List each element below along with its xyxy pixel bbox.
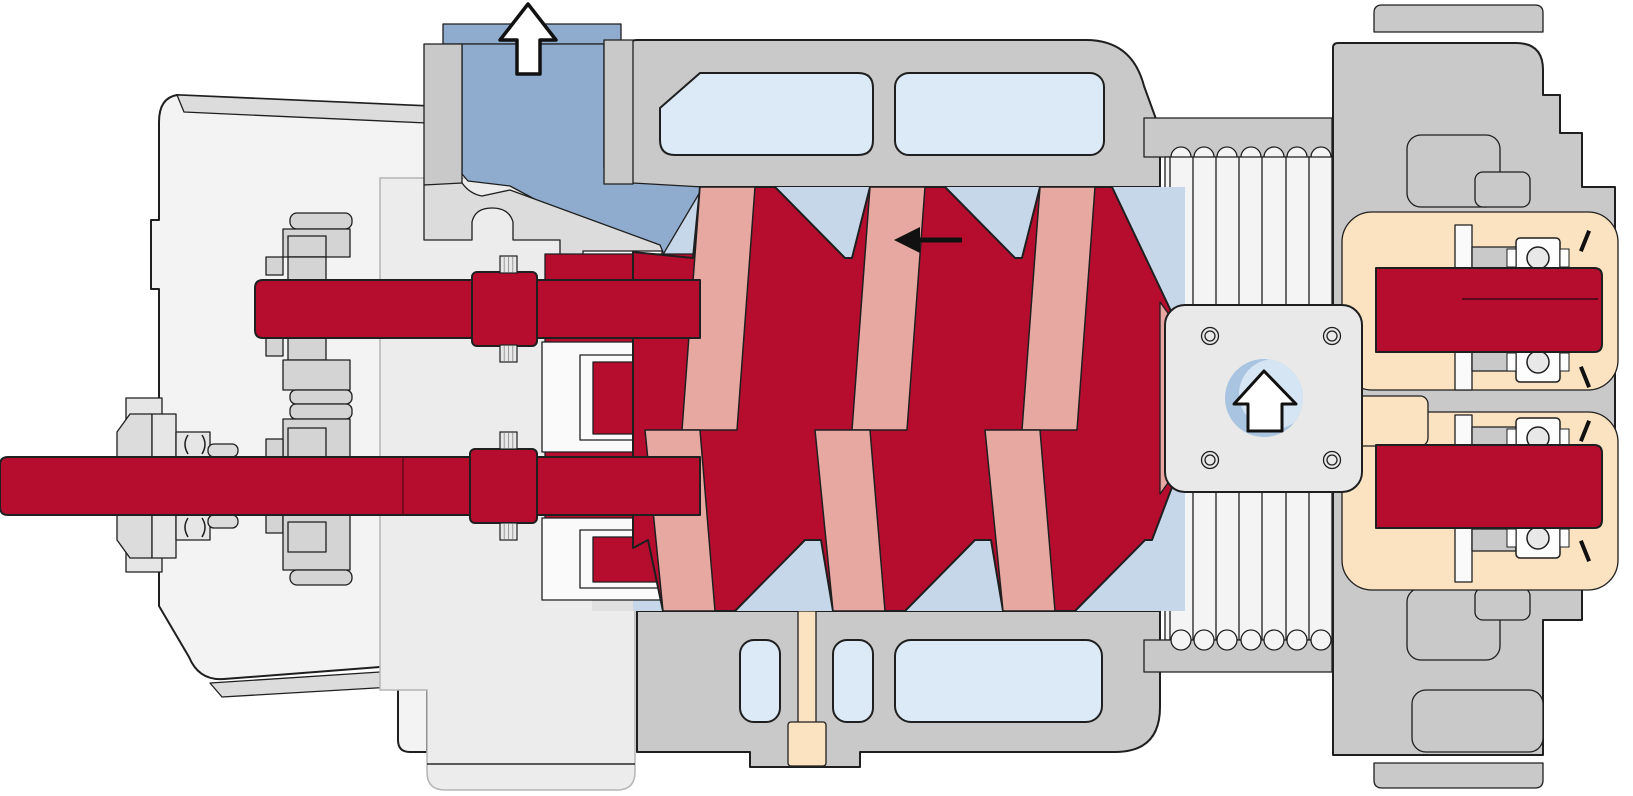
- casing-bottom: [637, 611, 1160, 767]
- duct-wall-right: [604, 40, 633, 184]
- drive-shaft-lower: [0, 457, 700, 515]
- cooling-window-top-left: [660, 73, 873, 155]
- cooling-window-top-right: [895, 73, 1104, 155]
- duct-wall-left: [424, 44, 462, 185]
- rotor-shaft-end-upper: [1376, 268, 1602, 352]
- drain-plug: [788, 722, 826, 766]
- screw-rotors: [633, 187, 1180, 611]
- screw-compressor-diagram: [0, 0, 1633, 796]
- casing-top: [629, 40, 1160, 187]
- cooling-window-bottom-2: [833, 640, 873, 722]
- lower-shaft-boss: [470, 449, 537, 523]
- cooling-window-bottom-1: [740, 640, 780, 722]
- cooling-window-bottom-3: [895, 640, 1102, 722]
- oil-drain-channel: [798, 611, 816, 723]
- suction-flange: [1165, 305, 1362, 492]
- rotor-shaft-end-lower: [1376, 445, 1602, 528]
- bearing-housing: [1333, 5, 1618, 788]
- upper-shaft-boss: [472, 272, 537, 346]
